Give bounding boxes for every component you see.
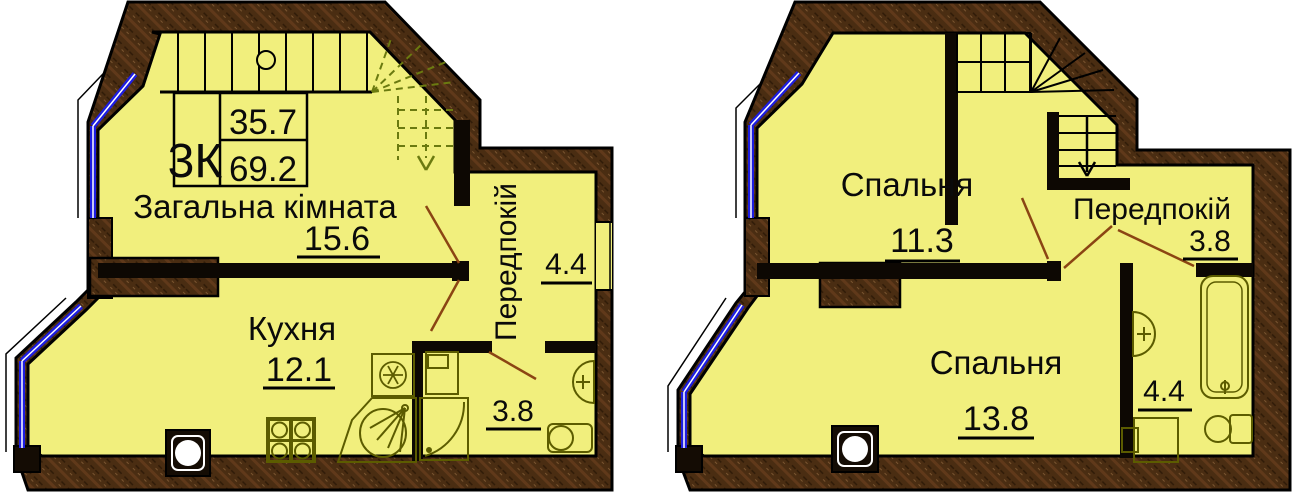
floor-plan-level-2: Спальня 11.3 Передпокій 3.8 Спальня 13.8… [650, 0, 1297, 500]
entry-door-opening [596, 222, 612, 290]
room-area-living: 15.6 [304, 220, 370, 258]
corner-wall-block [676, 446, 702, 472]
corner-wall-block [14, 446, 40, 472]
room-area-bathroom: 4.4 [1143, 375, 1185, 408]
stove-icon [267, 418, 315, 462]
vent-shaft-icon [166, 430, 210, 476]
floor-plan-level-1: 3К 35.7 69.2 Загальна кімната 15.6 Кухня… [0, 0, 650, 500]
total-area-value: 69.2 [229, 150, 297, 189]
wall-pier [745, 218, 769, 296]
stair-newel-post [257, 51, 275, 69]
room-label-hallway: Передпокій [1073, 193, 1231, 226]
room-area-hallway: 4.4 [545, 248, 587, 281]
vent-shaft-icon [832, 426, 878, 472]
room-label-bedroom2: Спальня [930, 344, 1063, 381]
room-label-bedroom1: Спальня [841, 166, 974, 203]
room-area-kitchen: 12.1 [266, 351, 332, 389]
room-label-kitchen: Кухня [248, 310, 336, 347]
room-area-hallway: 3.8 [1189, 225, 1231, 258]
room-area-bedroom1: 11.3 [890, 222, 954, 260]
room-area-bedroom2: 13.8 [963, 400, 1029, 438]
living-area-value: 35.7 [229, 103, 297, 142]
room-label-hallway: Передпокій [490, 183, 523, 341]
apartment-type-label: 3К [168, 135, 223, 188]
floor-plan-canvas: 3К 35.7 69.2 Загальна кімната 15.6 Кухня… [0, 0, 1297, 500]
room-area-bathroom: 3.8 [492, 395, 534, 428]
